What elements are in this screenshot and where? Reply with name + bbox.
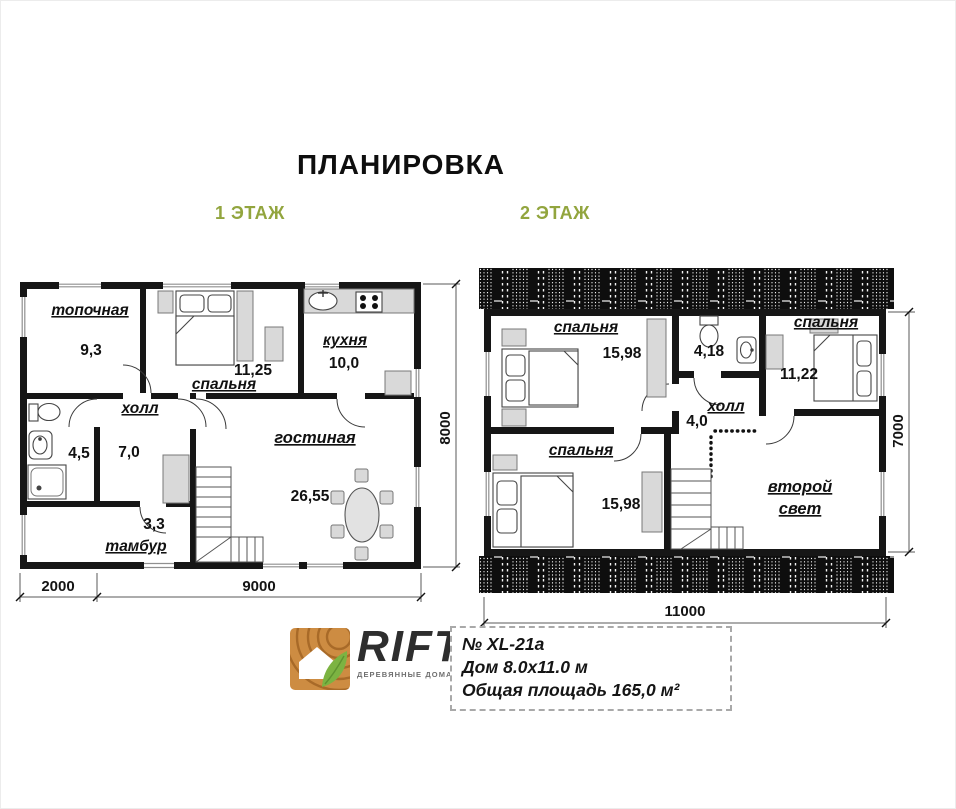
window <box>414 369 421 397</box>
room-label-living: гостиная <box>274 429 356 447</box>
bed-icon <box>493 473 573 547</box>
roof-hatch-bottom <box>479 556 894 593</box>
floor2-label: 2 ЭТАЖ <box>520 203 590 224</box>
bed-icon <box>502 349 578 407</box>
house-size: Дом 8.0х11.0 м <box>462 656 720 679</box>
nightstand <box>502 329 526 346</box>
window <box>20 297 27 337</box>
wardrobe <box>265 327 283 361</box>
kitchen-counter <box>304 289 414 313</box>
dim-2000: 2000 <box>41 578 74 595</box>
dining-table-icon <box>331 469 393 560</box>
window <box>307 562 343 569</box>
room-label-bedroom3: спальня <box>549 442 613 459</box>
room-area-bedroom2: 11,22 <box>780 366 818 383</box>
window <box>163 282 231 289</box>
room-area-vestibule: 3,3 <box>143 516 165 533</box>
total-area: Общая площадь 165,0 м² <box>462 679 720 702</box>
room-area-bathroom: 4,18 <box>694 343 725 360</box>
washbasin-icon <box>737 337 756 363</box>
window <box>263 562 299 569</box>
room-label-void-1: второй <box>768 478 833 496</box>
logo-wood-icon <box>289 627 351 691</box>
window <box>59 282 101 289</box>
staircase <box>671 469 743 549</box>
room-label-vestibule: тамбур <box>105 538 166 555</box>
room-area-bedroom: 11,25 <box>234 362 272 379</box>
dim-9000: 9000 <box>242 578 275 595</box>
room-area-hall: 7,0 <box>118 444 140 461</box>
door-arc <box>123 365 151 393</box>
wardrobe <box>237 291 253 361</box>
hall-closet <box>163 455 189 503</box>
window <box>305 282 339 289</box>
staircase <box>196 467 263 562</box>
window <box>414 467 421 507</box>
window <box>879 354 886 396</box>
floor1-label: 1 ЭТАЖ <box>215 203 285 224</box>
floor2-plan: спальня 15,98 4,18 спальня 11,22 холл 4,… <box>469 259 939 639</box>
entry-door-opening <box>144 562 174 569</box>
project-number: № XL-21a <box>462 633 720 656</box>
bed-icon <box>814 335 877 401</box>
room-area-boiler: 9,3 <box>80 342 102 359</box>
room-area-bedroom3: 15,98 <box>602 496 641 513</box>
window <box>484 472 491 516</box>
wardrobe <box>642 472 662 532</box>
dim-11000: 11000 <box>665 603 706 620</box>
room-area-bedroom1: 15,98 <box>603 345 642 362</box>
floor1-plan: топочная 9,3 спальня 11,25 кухня 10,0 хо… <box>13 271 475 616</box>
door-arc <box>614 434 641 461</box>
floor-plan-page: ПЛАНИРОВКА 1 ЭТАЖ 2 ЭТАЖ <box>0 0 956 809</box>
stove-icon <box>356 292 382 312</box>
room-label-hall: холл <box>121 400 159 417</box>
room-area-hall: 4,0 <box>686 413 708 430</box>
wardrobe <box>647 319 666 397</box>
dim-7000: 7000 <box>890 414 907 447</box>
wardrobe <box>766 335 783 369</box>
washbasin-icon <box>29 431 52 459</box>
room-area-living: 26,55 <box>291 488 330 505</box>
room-label-hall: холл <box>707 398 745 415</box>
fridge <box>385 371 411 395</box>
roof-hatch-top <box>479 268 894 309</box>
nightstand <box>493 455 517 470</box>
door-arc <box>196 399 226 429</box>
toilet-icon <box>29 404 60 422</box>
room-label-void-2: свет <box>779 500 822 518</box>
window <box>484 352 491 396</box>
shower-icon <box>28 465 66 499</box>
room-area-bathroom: 4,5 <box>68 445 90 462</box>
nightstand <box>158 291 173 313</box>
stair-railing <box>711 431 759 477</box>
project-info-box: № XL-21a Дом 8.0х11.0 м Общая площадь 16… <box>450 626 732 711</box>
door-arc <box>178 399 206 427</box>
page-title: ПЛАНИРОВКА <box>231 149 571 181</box>
room-label-kitchen: кухня <box>323 332 367 349</box>
room-label-bedroom1: спальня <box>554 319 618 336</box>
nightstand <box>502 409 526 426</box>
window <box>20 515 27 555</box>
room-area-kitchen: 10,0 <box>329 355 359 372</box>
door-arc <box>337 399 365 427</box>
window <box>879 472 886 516</box>
door-arc <box>766 416 794 444</box>
bed-icon <box>176 291 234 365</box>
dim-8000: 8000 <box>437 411 454 444</box>
door-arc <box>69 399 97 427</box>
room-label-boiler: топочная <box>51 302 128 319</box>
room-label-bedroom2: спальня <box>794 314 858 331</box>
